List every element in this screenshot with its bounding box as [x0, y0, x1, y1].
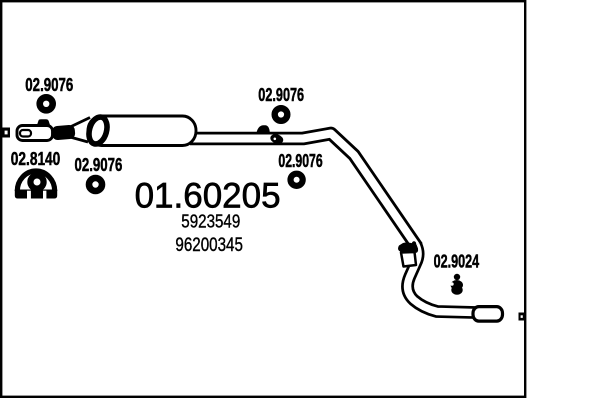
svg-text:02.8140: 02.8140 — [11, 149, 61, 169]
svg-text:02.9024: 02.9024 — [434, 252, 480, 272]
svg-text:96200345: 96200345 — [175, 234, 243, 256]
svg-text:02.9076: 02.9076 — [75, 155, 123, 175]
svg-text:5923549: 5923549 — [181, 211, 240, 232]
svg-text:02.9076: 02.9076 — [25, 75, 73, 95]
svg-text:02.9076: 02.9076 — [258, 85, 304, 105]
svg-text:02.9076: 02.9076 — [278, 151, 322, 171]
svg-text:01.60205: 01.60205 — [135, 176, 281, 216]
